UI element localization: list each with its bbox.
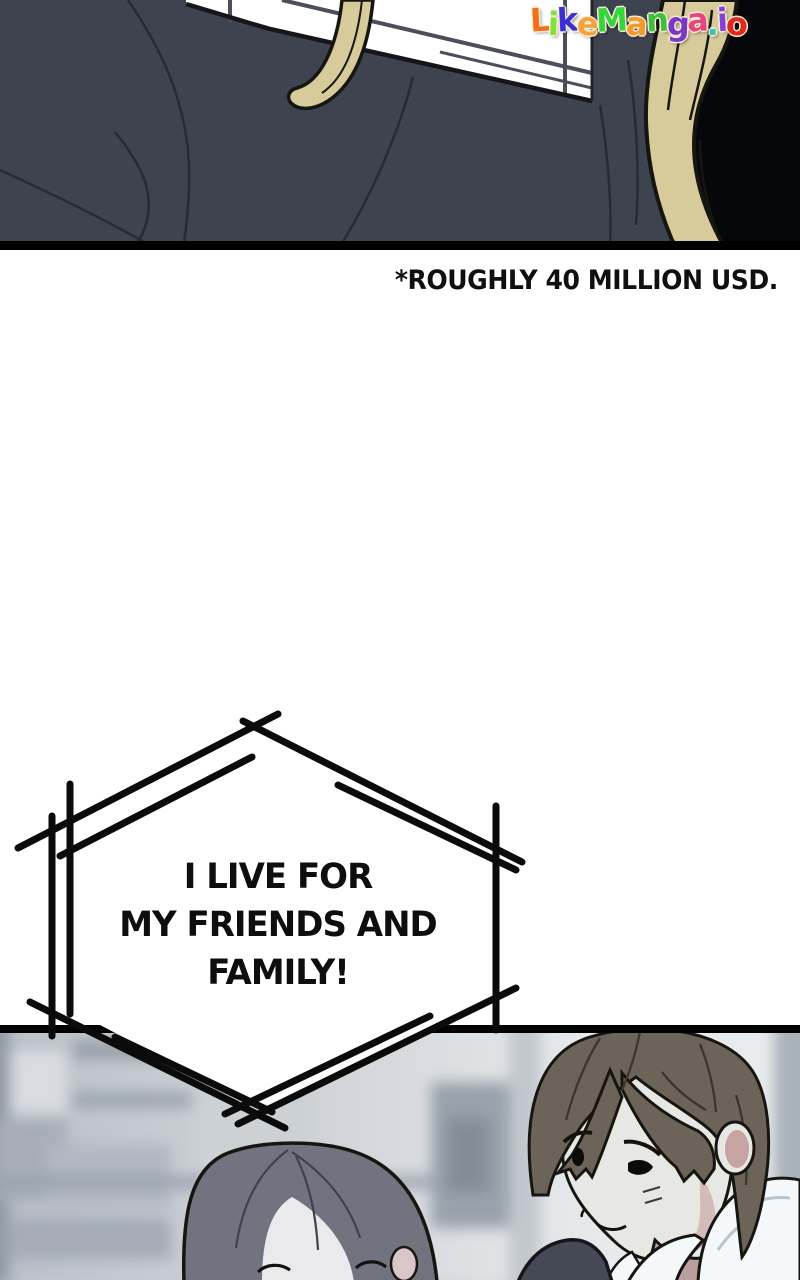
man-ear-inner: [725, 1130, 749, 1168]
speech-line: I LIVE FOR: [101, 853, 454, 901]
site-watermark: LikeManga.io: [530, 3, 746, 41]
watermark-letter: M: [595, 0, 629, 40]
speech-line: FAMILY!: [101, 949, 454, 997]
woman-ear: [391, 1247, 417, 1280]
translator-caption: *ROUGHLY 40 MILLION USD.: [395, 265, 778, 296]
webtoon-page: LikeManga.io *ROUGHLY 40 MILLION USD.: [0, 0, 800, 1280]
man-left-eye: [572, 1148, 584, 1166]
watermark-letter: o: [726, 5, 749, 44]
man-jacket-shoulder: [518, 1240, 612, 1280]
speech-bubble-text: I LIVE FOR MY FRIENDS AND FAMILY!: [101, 853, 454, 997]
woman-character: [184, 1143, 437, 1280]
man-character: [518, 1029, 800, 1280]
speech-line: MY FRIENDS AND: [101, 901, 454, 949]
panel-top-border: [0, 241, 800, 250]
